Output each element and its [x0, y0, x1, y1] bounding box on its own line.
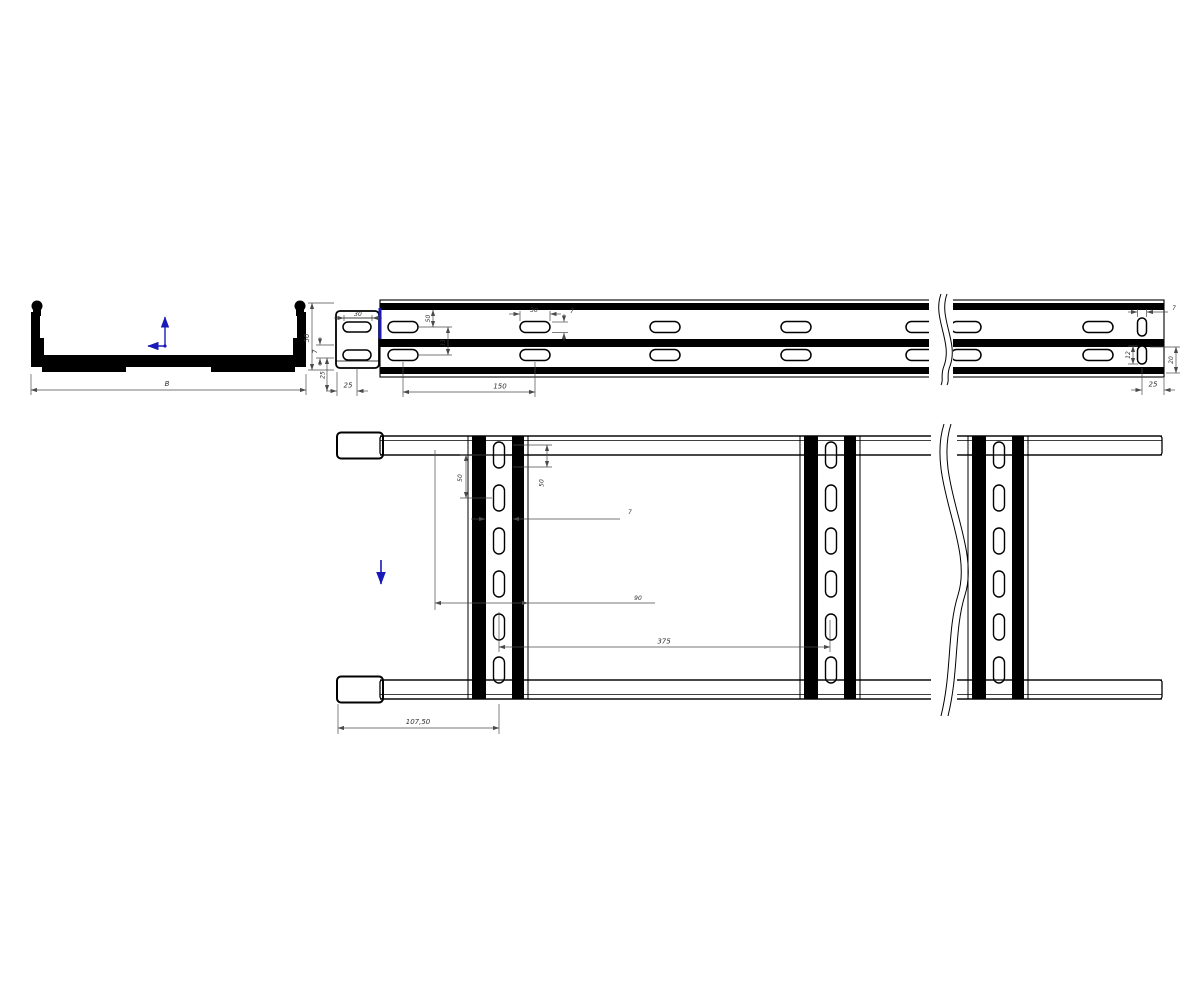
dim-plan-rung-spacing: 375 — [657, 638, 671, 646]
dim-end-slot-width: 7 — [1172, 305, 1176, 312]
dim-slot-pitch: 150 — [493, 383, 507, 391]
dim-row-gap: 33 — [440, 339, 447, 347]
selected-edge-highlight — [379, 308, 382, 339]
dim-end-margin: 25 — [1149, 381, 1158, 389]
rung-2 — [800, 436, 860, 699]
dim-end-slot-height: 20 — [1168, 356, 1175, 364]
rail-slots-upper — [388, 318, 1147, 336]
rail-end-cap-top-left — [337, 433, 383, 459]
rung-1 — [468, 436, 528, 699]
dim-side-base: 25 — [320, 371, 327, 379]
section-view: B — [31, 301, 306, 396]
rung-3 — [968, 436, 1028, 699]
dim-end-slot-gap: 12 — [1125, 351, 1132, 359]
drawing-canvas: B — [0, 0, 1200, 1000]
dim-plan-slot-pitch: 50 — [457, 474, 464, 482]
dim-side-height: 50 — [303, 333, 311, 342]
dim-row-offset: 50 — [425, 315, 432, 323]
splice-connector — [336, 311, 379, 368]
rail-end-cap-bottom-left — [337, 677, 383, 703]
dim-slot-length-a: 30 — [354, 311, 362, 318]
ucs-axis-icon — [148, 317, 167, 348]
dim-slot-length-b: 30 — [530, 307, 538, 314]
dim-side-left-margin: 25 — [344, 382, 353, 390]
dim-plan-edge-offset: 50 — [539, 479, 546, 487]
side-view-dimensions-right: 7 12 20 25 — [1125, 305, 1180, 395]
dim-plan-slot-width: 7 — [628, 509, 632, 516]
dim-side-flange: 7 — [312, 349, 319, 353]
rail-slots-lower — [388, 346, 1147, 364]
dim-plan-first-rung: 107,50 — [406, 718, 431, 726]
dim-plan-rung-width: 90 — [634, 595, 642, 602]
drawing-sheet: B — [0, 0, 1200, 1000]
dim-slot-height: 7 — [570, 308, 574, 315]
plan-view-dimensions: 50 50 7 90 375 107,50 — [338, 445, 830, 734]
side-elevation-view — [336, 294, 1164, 385]
dim-section-width: B — [165, 380, 170, 388]
plan-view — [337, 424, 1162, 716]
